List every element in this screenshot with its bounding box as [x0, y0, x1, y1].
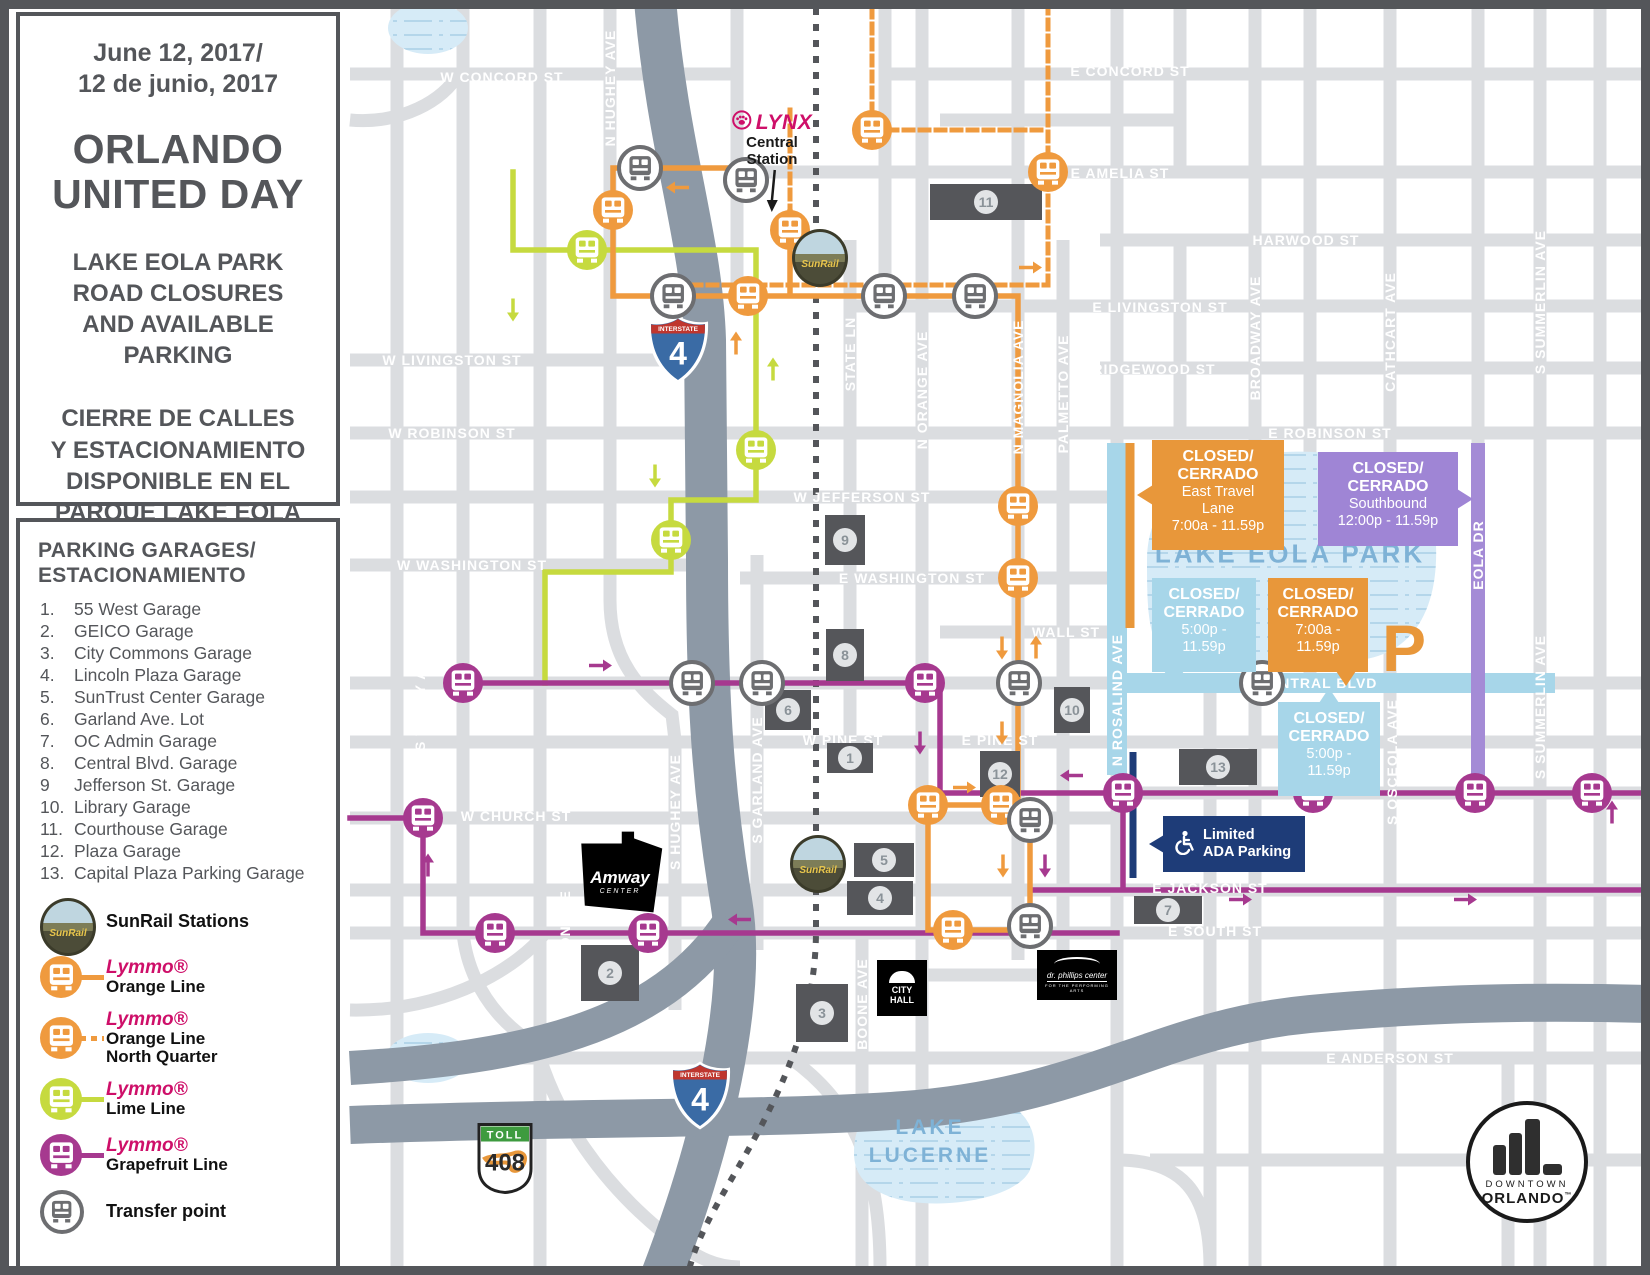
garage-number: 1 — [838, 746, 862, 770]
bus-stop-grapefruit-icon — [1103, 773, 1143, 813]
street-label: HARWOOD ST — [1253, 232, 1360, 248]
bus-icon — [40, 956, 82, 998]
closure-callout-title: CERRADO — [1318, 478, 1458, 496]
parking-garage-name: Garland Ave. Lot — [74, 708, 204, 730]
title-panel: June 12, 2017/ 12 de junio, 2017 ORLANDO… — [16, 12, 340, 506]
lymmo-wordmark: Lymmo® — [106, 1136, 228, 1156]
street-label: S SUMMERLIN AVE — [1532, 230, 1548, 374]
parking-garage-name: City Commons Garage — [74, 642, 252, 664]
garage-number: 8 — [833, 643, 857, 667]
bus-stop-grapefruit-icon — [628, 913, 668, 953]
subtitle-line: AND AVAILABLE — [20, 309, 336, 340]
street-label: S SUMMERLIN AVE — [1532, 635, 1548, 779]
street-label: W LIVINGSTON ST — [382, 352, 521, 368]
subtitle-line: DISPONIBLE EN EL — [20, 466, 336, 497]
direction-arrow-icon — [1059, 769, 1085, 788]
garage-number: 7 — [1156, 898, 1180, 922]
garage-number: 6 — [776, 698, 800, 722]
direction-arrow-icon — [989, 726, 1015, 745]
parking-garage-number: 1. — [40, 598, 74, 620]
parking-garage-number: 5. — [40, 686, 74, 708]
legend-sunrail-row: SunRailSunRail Stations — [40, 898, 336, 944]
direction-arrow-icon — [587, 659, 613, 678]
transfer-point-icon — [739, 660, 785, 706]
bus-icon — [40, 1078, 82, 1120]
closure-callout-title: CLOSED/ — [1152, 586, 1256, 604]
bus-stop-orange-icon — [852, 110, 892, 150]
street-label: W WASHINGTON ST — [397, 557, 547, 573]
garage-marker: 13 — [1179, 749, 1257, 785]
transfer-icon — [40, 1190, 84, 1234]
skyline-bars-icon — [1493, 1117, 1562, 1175]
garage-marker: 2 — [581, 945, 639, 1001]
garage-number: 3 — [810, 1001, 834, 1025]
street-label: S GARLAND AVE — [749, 716, 765, 843]
bus-icon — [40, 1134, 82, 1176]
parking-garage-name: GEICO Garage — [74, 620, 194, 642]
sunrail-badge-text: SunRail — [799, 865, 836, 876]
parking-garage-number: 11. — [40, 818, 74, 840]
street-label: E AMELIA ST — [1071, 165, 1170, 181]
closure-callout: CLOSED/CERRADO5:00p -11.59p — [1152, 578, 1256, 672]
garage-marker: 3 — [796, 984, 848, 1042]
dr-phillips-center-landmark: dr. phillips centerFOR THE PERFORMING AR… — [1037, 950, 1117, 1000]
direction-arrow-icon — [1017, 261, 1043, 280]
lymmo-wordmark: Lymmo® — [106, 1080, 188, 1100]
subtitle-spanish: CIERRE DE CALLESY ESTACIONAMIENTODISPONI… — [20, 403, 336, 528]
parking-garage-number: 10. — [40, 796, 74, 818]
svg-text:INTERSTATE: INTERSTATE — [658, 326, 699, 333]
legend-line-row: Lymmo®Lime Line — [40, 1076, 336, 1122]
closure-callout-title: CERRADO — [1268, 604, 1368, 622]
direction-arrow-icon — [1023, 641, 1049, 660]
street-label: W CHURCH ST — [461, 808, 572, 824]
station-pointer-arrow — [757, 168, 787, 214]
sunrail-logo-icon: SunRail — [40, 898, 106, 944]
transfer-point-icon — [617, 145, 663, 191]
legend-line-name: Orange Line — [106, 978, 205, 996]
svg-text:4: 4 — [691, 1082, 709, 1118]
garage-marker: 9 — [825, 515, 865, 565]
direction-arrow-icon — [415, 859, 441, 878]
subtitle-line: CIERRE DE CALLES — [20, 403, 336, 434]
closure-callout-detail: 7:00a - 11.59p — [1152, 518, 1284, 535]
lynx-paw-icon — [732, 110, 752, 135]
street-label: RIDGEWOOD ST — [1092, 361, 1215, 377]
legend-line-row: Lymmo®Grapefruit Line — [40, 1132, 336, 1178]
legend-line-name: North Quarter — [106, 1048, 217, 1066]
parking-garage-list: 1.55 West Garage2.GEICO Garage3.City Com… — [20, 598, 336, 884]
parking-garage-name: Jefferson St. Garage — [74, 774, 235, 796]
street-label: BOONE AVE — [854, 958, 870, 1049]
closure-callout: CLOSED/CERRADOSouthbound12:00p - 11.59p — [1318, 452, 1458, 546]
subtitle-english: LAKE EOLA PARKROAD CLOSURESAND AVAILABLE… — [20, 247, 336, 372]
parking-garage-number: 6. — [40, 708, 74, 730]
parking-garage-item: 13.Capital Plaza Parking Garage — [40, 862, 336, 884]
parking-garage-item: 5.SunTrust Center Garage — [40, 686, 336, 708]
garage-marker: 4 — [847, 881, 913, 915]
lake-label: LUCERNE — [869, 1144, 992, 1168]
closure-callout-title: CERRADO — [1278, 728, 1380, 746]
sunrail-badge-icon: SunRail — [40, 898, 96, 956]
closure-callout: CLOSED/CERRADOEast TravelLane7:00a - 11.… — [1152, 440, 1284, 550]
bus-stop-orange-icon — [933, 910, 973, 950]
legend-transfer-label: Transfer point — [106, 1202, 226, 1221]
parking-garage-name: Capital Plaza Parking Garage — [74, 862, 305, 884]
legend-line-label: Lymmo®Orange Line — [106, 958, 205, 996]
lymmo-wordmark: Lymmo® — [106, 958, 205, 978]
garage-number: 11 — [974, 190, 998, 214]
bus-stop-orange-icon — [998, 486, 1038, 526]
subtitle-line: PARKING — [20, 340, 336, 371]
toll-408-shield: TOLL408 — [475, 1121, 535, 1200]
parking-garage-name: 55 West Garage — [74, 598, 201, 620]
garage-marker: 10 — [1054, 687, 1090, 733]
legend-line-label: Lymmo®Lime Line — [106, 1080, 188, 1118]
garage-number: 9 — [833, 528, 857, 552]
bus-icon — [40, 1017, 82, 1059]
street-label: PALMETTO AVE — [1055, 335, 1071, 454]
bus-stop-grapefruit-icon — [1572, 773, 1612, 813]
subtitle-line: Y ESTACIONAMIENTO — [20, 435, 336, 466]
closure-callout-detail: 11.59p — [1268, 639, 1368, 656]
orange-line-icon — [40, 1015, 106, 1061]
svg-text:INTERSTATE: INTERSTATE — [680, 1072, 721, 1079]
legend-sunrail-label: SunRail Stations — [106, 912, 249, 931]
parking-garage-number: 9 — [40, 774, 74, 796]
line-stub — [80, 1097, 104, 1102]
street-label: W JEFFERSON ST — [794, 489, 931, 505]
street-label: W CONCORD ST — [440, 69, 563, 85]
closure-callout-detail: Lane — [1152, 501, 1284, 518]
legend-line-row: Lymmo®Orange LineNorth Quarter — [40, 1010, 336, 1066]
street-label: N ROSALIND AVE — [1109, 634, 1125, 766]
callout-pointer — [1336, 671, 1356, 686]
parking-garage-name: SunTrust Center Garage — [74, 686, 265, 708]
parking-garage-item: 12.Plaza Garage — [40, 840, 336, 862]
garage-marker: 11 — [930, 184, 1042, 220]
parking-garage-number: 13. — [40, 862, 74, 884]
callout-pointer — [1149, 835, 1164, 853]
closure-callout-title: CLOSED/ — [1268, 586, 1368, 604]
garage-marker: 5 — [854, 843, 914, 877]
bus-stop-lime-icon — [736, 430, 776, 470]
closure-callout-detail: East Travel — [1152, 484, 1284, 501]
garage-number: 10 — [1060, 698, 1084, 722]
garage-number: 5 — [872, 848, 896, 872]
bus-stop-orange-icon — [998, 558, 1038, 598]
direction-arrow-icon — [665, 181, 691, 200]
sunrail-station-badge: SunRail — [792, 229, 848, 287]
closure-callout-detail: 7:00a - — [1268, 622, 1368, 639]
legend-line-row: Lymmo®Orange Line — [40, 954, 336, 1000]
direction-arrow-icon — [1227, 893, 1253, 912]
bus-stop-grapefruit-icon — [905, 663, 945, 703]
garage-number: 4 — [868, 886, 892, 910]
transfer-point-icon — [952, 273, 998, 319]
closure-callout-title: CLOSED/ — [1278, 710, 1380, 728]
direction-arrow-icon — [1452, 893, 1478, 912]
bus-stop-orange-icon — [908, 785, 948, 825]
parking-garage-item: 3.City Commons Garage — [40, 642, 336, 664]
parking-heading: PARKING GARAGES/ ESTACIONAMIENTO — [38, 538, 336, 588]
direction-arrow-icon — [642, 469, 668, 488]
lake-label: LAKE — [895, 1116, 964, 1140]
garage-marker: 7 — [1134, 896, 1202, 924]
closure-callout-title: CERRADO — [1152, 604, 1256, 622]
transfer-point-icon — [650, 273, 696, 319]
street-label: E ANDERSON ST — [1326, 1050, 1454, 1066]
orlando-united-day-map: W CONCORD STE CONCORD STN HUGHEY AVEE AM… — [0, 0, 1650, 1275]
closure-callout-title: CLOSED/ — [1318, 460, 1458, 478]
sunrail-badge-text: SunRail — [801, 259, 838, 270]
direction-arrow-icon — [760, 363, 786, 382]
garage-number: 12 — [988, 762, 1012, 786]
street-label: S HUGHEY AVE — [667, 754, 683, 870]
closure-callout-detail: 12:00p - 11.59p — [1318, 513, 1458, 530]
callout-pointer — [1137, 485, 1153, 505]
parking-garage-number: 4. — [40, 664, 74, 686]
legend-line-name: Lime Line — [106, 1100, 188, 1118]
parking-garage-item: 4.Lincoln Plaza Garage — [40, 664, 336, 686]
transfer-point-icon — [1007, 903, 1053, 949]
legend-line-name: Orange Line — [106, 1030, 217, 1048]
garage-number: 13 — [1206, 755, 1230, 779]
closure-callout-detail: 5:00p - — [1152, 622, 1256, 639]
street-label: BROADWAY AVE — [1247, 276, 1263, 401]
bus-stop-orange-icon — [728, 276, 768, 316]
street-label: E ROBINSON ST — [1268, 425, 1391, 441]
parking-garage-item: 7.OC Admin Garage — [40, 730, 336, 752]
map-legend: SunRailSunRail StationsLymmo®Orange Line… — [40, 898, 336, 1234]
parking-garage-item: 8.Central Blvd. Garage — [40, 752, 336, 774]
bus-stop-lime-icon — [651, 520, 691, 560]
callout-pointer — [1457, 489, 1473, 509]
interstate-4-shield: INTERSTATE4 — [668, 1061, 732, 1136]
parking-garage-name: Library Garage — [74, 796, 191, 818]
svg-text:4: 4 — [669, 336, 687, 372]
garage-marker: 1 — [827, 743, 873, 773]
line-stub — [80, 1153, 104, 1158]
direction-arrow-icon — [1032, 859, 1058, 878]
bus-stop-grapefruit-icon — [443, 663, 483, 703]
street-label: CATHCART AVE — [1382, 272, 1398, 392]
parking-garage-number: 7. — [40, 730, 74, 752]
legend-line-label: Lymmo®Grapefruit Line — [106, 1136, 228, 1174]
transfer-point-icon — [1007, 797, 1053, 843]
garage-number: 2 — [598, 961, 622, 985]
orange-line-icon — [40, 954, 106, 1000]
parking-garage-name: Plaza Garage — [74, 840, 181, 862]
subtitle-line: ROAD CLOSURES — [20, 278, 336, 309]
subtitle-line: LAKE EOLA PARK — [20, 247, 336, 278]
parking-garage-item: 1.55 West Garage — [40, 598, 336, 620]
transfer-point-icon — [996, 660, 1042, 706]
callout-pointer — [1319, 688, 1339, 703]
street-label: W ROBINSON ST — [388, 425, 515, 441]
closure-callout-title: CLOSED/ — [1152, 448, 1284, 466]
direction-arrow-icon — [727, 913, 753, 932]
closure-callout-detail: 11.59p — [1278, 763, 1380, 780]
event-date-es: 12 de junio, 2017 — [20, 69, 336, 100]
street-label: N MAGNOLIA AVE — [1010, 320, 1026, 455]
street-label: N HUGHEY AVE — [602, 30, 618, 147]
callout-pointer — [1164, 671, 1184, 686]
transfer-point-icon — [40, 1188, 106, 1234]
transfer-point-icon — [669, 660, 715, 706]
street-label: N ORANGE AVE — [914, 331, 930, 450]
street-label: S OSCEOLA AVE — [1384, 699, 1400, 825]
closure-callout-detail: 5:00p - — [1278, 746, 1380, 763]
ada-parking-callout: LimitedADA Parking — [1163, 816, 1305, 872]
parking-garage-item: 10.Library Garage — [40, 796, 336, 818]
line-stub — [80, 1036, 104, 1041]
lynx-central-station-label: LYNXCentralStation — [732, 110, 812, 219]
amway-center-landmark: AmwayCENTER — [576, 830, 664, 914]
parking-garage-number: 3. — [40, 642, 74, 664]
closure-callout: CLOSED/CERRADO5:00p -11.59p — [1278, 702, 1380, 796]
interstate-4-shield: INTERSTATE4 — [646, 315, 710, 390]
grapefruit-line-icon — [40, 1132, 106, 1178]
bus-stop-orange-icon — [593, 190, 633, 230]
street-label: STATE LN — [842, 317, 858, 391]
street-label: E WASHINGTON ST — [839, 570, 985, 586]
closure-callout: CLOSED/CERRADO7:00a -11.59p — [1268, 578, 1368, 672]
closure-callout-detail: 11.59p — [1152, 639, 1256, 656]
street-label: E LIVINGSTON ST — [1092, 299, 1227, 315]
lymmo-wordmark: Lymmo® — [106, 1010, 217, 1030]
direction-arrow-icon — [907, 736, 933, 755]
parking-garage-name: Lincoln Plaza Garage — [74, 664, 241, 686]
street-label: MARIPOSA ST — [1414, 832, 1522, 848]
garage-marker: 8 — [826, 629, 864, 681]
bus-stop-grapefruit-icon — [403, 798, 443, 838]
bus-stop-grapefruit-icon — [475, 913, 515, 953]
closure-callout-detail: Southbound — [1318, 496, 1458, 513]
page-title: ORLANDO UNITED DAY — [20, 127, 336, 217]
parking-garage-item: 2.GEICO Garage — [40, 620, 336, 642]
bus-stop-grapefruit-icon — [1455, 773, 1495, 813]
parking-legend-panel: PARKING GARAGES/ ESTACIONAMIENTO 1.55 We… — [16, 518, 340, 1271]
downtown-orlando-logo: DOWNTOWNORLANDO™ — [1466, 1101, 1588, 1223]
arcs-icon — [1054, 957, 1100, 971]
direction-arrow-icon — [990, 859, 1016, 878]
parking-garage-number: 12. — [40, 840, 74, 862]
transfer-point-icon — [861, 273, 907, 319]
parking-garage-item: 9Jefferson St. Garage — [40, 774, 336, 796]
bus-stop-orange-icon — [1028, 152, 1068, 192]
parking-garage-name: Central Blvd. Garage — [74, 752, 237, 774]
legend-line-label: Lymmo®Orange LineNorth Quarter — [106, 1010, 217, 1066]
city-hall-landmark: CITYHALL — [877, 960, 927, 1016]
street-label: E SOUTH ST — [1168, 923, 1262, 939]
street-label: S TERRY AVE — [412, 649, 428, 751]
parking-garage-name: OC Admin Garage — [74, 730, 217, 752]
parking-garage-item: 11.Courthouse Garage — [40, 818, 336, 840]
legend-transfer-row: Transfer point — [40, 1188, 336, 1234]
parking-garage-item: 6.Garland Ave. Lot — [40, 708, 336, 730]
svg-text:TOLL: TOLL — [487, 1130, 524, 1142]
parking-p-icon: P — [1382, 610, 1426, 686]
legend-line-name: Grapefruit Line — [106, 1156, 228, 1174]
parking-garage-number: 8. — [40, 752, 74, 774]
parking-garage-name: Courthouse Garage — [74, 818, 228, 840]
sunrail-station-badge: SunRail — [790, 835, 846, 893]
event-date-en: June 12, 2017/ — [20, 38, 336, 69]
lime-line-icon — [40, 1076, 106, 1122]
direction-arrow-icon — [989, 641, 1015, 660]
direction-arrow-icon — [500, 303, 526, 322]
closure-callout-title: CERRADO — [1152, 466, 1284, 484]
parking-garage-number: 2. — [40, 620, 74, 642]
svg-text:408: 408 — [485, 1150, 525, 1177]
street-label: E CONCORD ST — [1070, 63, 1189, 79]
wheelchair-icon — [1171, 829, 1197, 860]
bus-stop-lime-icon — [567, 230, 607, 270]
street-label: EOLA DR — [1470, 520, 1486, 589]
street-label: S DIVISION AVE — [557, 890, 573, 1010]
line-stub — [80, 975, 104, 980]
dome-icon — [889, 971, 915, 983]
direction-arrow-icon — [723, 337, 749, 356]
direction-arrow-icon — [951, 781, 977, 800]
